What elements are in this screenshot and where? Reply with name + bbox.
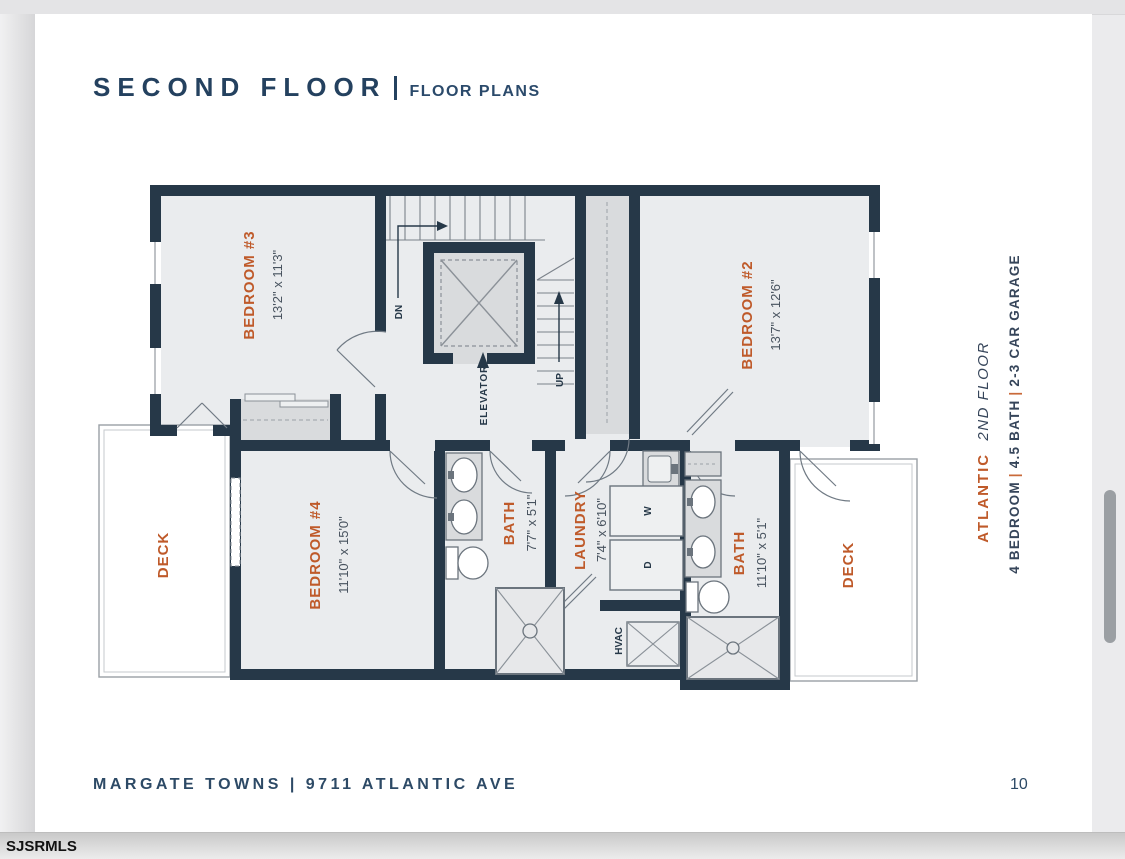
deck-right-label: DECK (840, 542, 857, 589)
spec-separator: | (1007, 387, 1022, 400)
shower-icon (687, 617, 779, 679)
spec-garage: 2-3 CAR GARAGE (1007, 254, 1022, 386)
deck-slider-door (231, 478, 240, 566)
plan-floor: 2ND FLOOR (975, 341, 992, 440)
browser-left-strip (0, 14, 35, 832)
stairs-up-label: UP (555, 373, 566, 387)
bath-right-name: BATH (731, 531, 748, 576)
footer-address: MARGATE TOWNS | 9711 ATLANTIC AVE (93, 776, 518, 794)
title-main: SECOND FLOOR (93, 72, 386, 103)
scrollbar-thumb[interactable] (1104, 490, 1116, 643)
bedroom4-name: BEDROOM #4 (307, 500, 324, 609)
toilet-icon (446, 547, 458, 579)
caption-bar: SJSRMLS (0, 832, 1125, 859)
bath-right-dims: 11'10" x 5'1" (754, 517, 769, 588)
page-title: SECOND FLOOR FLOOR PLANS (93, 72, 541, 103)
bedroom4-dims: 11'10" x 15'0" (336, 516, 351, 594)
bedroom2-dims: 13'7" x 12'6" (768, 279, 783, 351)
utility-sink-icon (643, 451, 679, 487)
title-subtitle: FLOOR PLANS (409, 83, 540, 101)
sink-icon (451, 500, 477, 534)
floor-plan: DN UP ELEVATOR (85, 180, 935, 700)
stairs-dn-label: DN (394, 305, 405, 319)
spec-bedroom: 4 BEDROOM (1007, 481, 1022, 574)
dryer-label: D (643, 561, 654, 568)
toilet-icon (686, 582, 698, 612)
plan-name-vertical: ATLANTIC 2ND FLOOR (975, 277, 993, 607)
spec-separator: | (1007, 468, 1022, 481)
plan-specs-vertical: 4 BEDROOM|4.5 BATH|2-3 CAR GARAGE (1007, 234, 1025, 594)
bedroom2-name: BEDROOM #2 (739, 260, 756, 369)
sink-icon (691, 536, 715, 568)
laundry-name: LAUNDRY (572, 490, 589, 570)
mls-watermark: SJSRMLS (0, 838, 77, 855)
bath-main-dims: 7'7" x 5'1" (524, 494, 539, 551)
sink-icon (691, 486, 715, 518)
deck-left-label: DECK (155, 532, 172, 579)
bedroom3-name: BEDROOM #3 (241, 230, 258, 339)
screenshot-root: { "header": { "title": "SECOND FLOOR", "… (0, 0, 1125, 858)
document-page: SECOND FLOOR FLOOR PLANS (35, 14, 1092, 832)
laundry-dims: 7'4" x 6'10" (594, 498, 609, 562)
title-divider (394, 76, 397, 100)
plan-name: ATLANTIC (975, 453, 992, 543)
bath-main-name: BATH (501, 501, 518, 546)
browser-top-strip (0, 0, 1125, 15)
bedroom3-dims: 13'2" x 11'3" (270, 249, 285, 320)
washer-label: W (643, 506, 654, 516)
elevator-label: ELEVATOR (479, 365, 490, 426)
closet-bedroom2 (586, 196, 629, 434)
hvac-label: HVAC (614, 627, 625, 655)
closet-bedroom3 (241, 394, 330, 440)
sink-icon (451, 458, 477, 492)
shower-icon (496, 588, 564, 674)
page-number: 10 (1010, 776, 1028, 794)
spec-bath: 4.5 BATH (1007, 400, 1022, 469)
